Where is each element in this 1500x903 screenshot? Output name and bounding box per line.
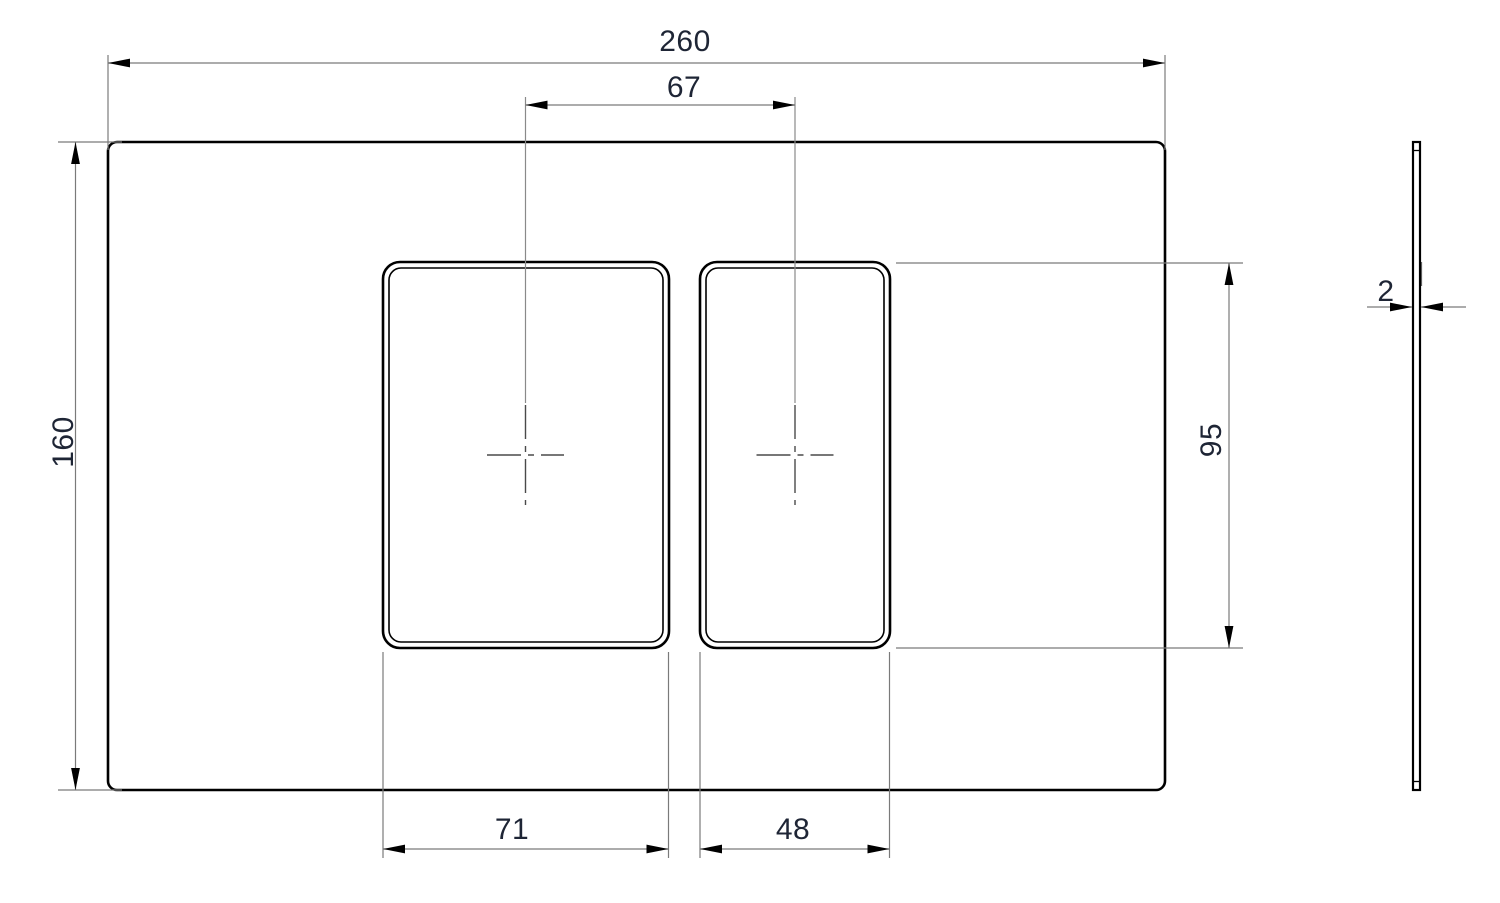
dim-slot-center-spacing: 67: [526, 71, 796, 105]
drawing-canvas: 260 67 160 95 71: [0, 0, 1500, 903]
dim-thickness: 2: [1367, 275, 1466, 308]
dim-overall-width: 260: [108, 25, 1165, 150]
right-slot-centerline: [757, 97, 834, 505]
dim-slot-height: 95: [896, 263, 1243, 648]
front-view: 260 67 160 95 71: [47, 25, 1243, 858]
side-view: 2: [1367, 142, 1466, 790]
dim-label-slot-height: 95: [1195, 423, 1228, 457]
dim-label-slot-center-spacing: 67: [667, 71, 701, 104]
side-profile-outline: [1413, 142, 1420, 790]
dim-right-slot-width: 48: [700, 652, 890, 858]
left-slot-centerline: [487, 97, 564, 505]
dim-label-left-slot-width: 71: [495, 813, 529, 846]
plate-outline: [108, 142, 1165, 790]
dim-label-right-slot-width: 48: [776, 813, 810, 846]
dim-left-slot-width: 71: [383, 652, 669, 858]
dim-label-thickness: 2: [1377, 275, 1394, 308]
dim-overall-height: 160: [47, 142, 122, 790]
technical-drawing: 260 67 160 95 71: [0, 0, 1500, 903]
dim-label-overall-height: 160: [47, 416, 80, 468]
dim-label-overall-width: 260: [659, 25, 711, 58]
